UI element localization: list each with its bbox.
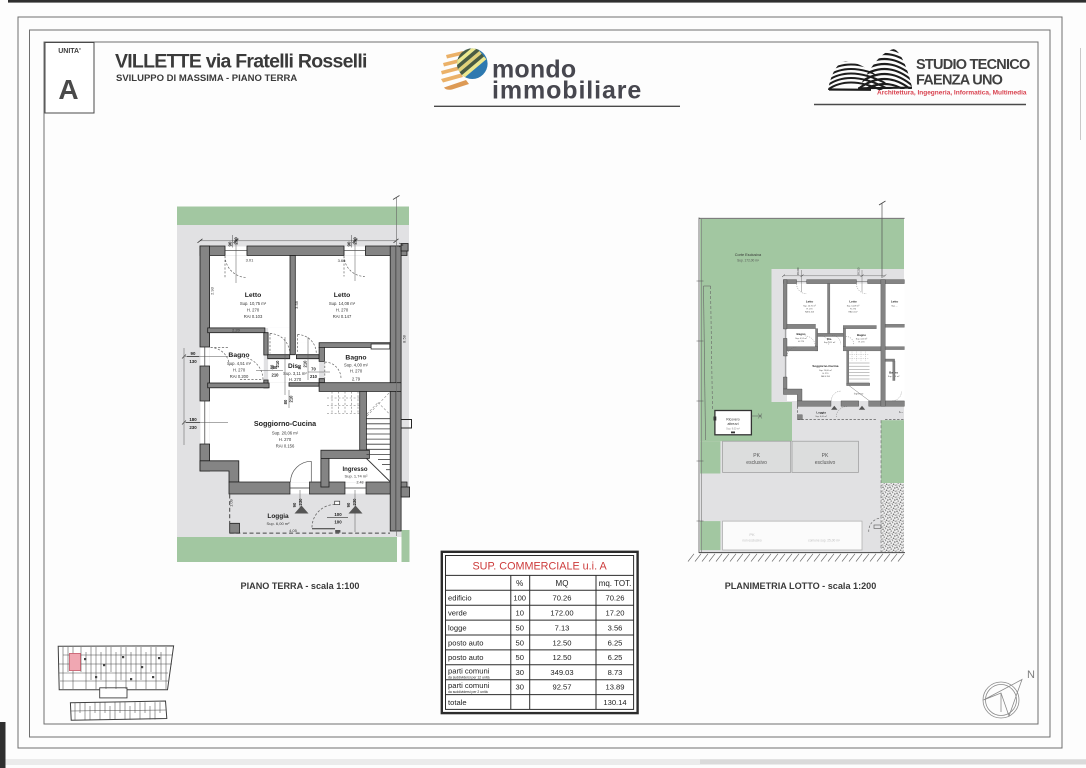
svg-text:N: N: [1027, 669, 1035, 681]
svg-text:immobiliare: immobiliare: [492, 77, 642, 105]
svg-text:Sup. ...: Sup. ...: [891, 306, 898, 308]
svg-text:30: 30: [515, 683, 523, 692]
svg-text:Soggiorno-Cucina: Soggiorno-Cucina: [812, 364, 838, 368]
svg-text:90: 90: [228, 241, 233, 246]
svg-text:comune sup. 25,00 m²: comune sup. 25,00 m²: [808, 539, 840, 543]
svg-text:Sup. 1,74 m²: Sup. 1,74 m²: [345, 474, 369, 479]
svg-text:non esclusivo: non esclusivo: [742, 539, 762, 543]
svg-text:230: 230: [353, 237, 358, 245]
svg-text:da suddividersi per 12 unità: da suddividersi per 12 unità: [448, 675, 490, 679]
svg-text:Sup. 20,06 m²: Sup. 20,06 m²: [819, 369, 832, 372]
svg-text:PK: PK: [822, 453, 829, 459]
svg-text:Letto: Letto: [849, 300, 856, 304]
svg-text:RAI 0.156: RAI 0.156: [276, 444, 295, 449]
svg-text:100: 100: [513, 594, 526, 603]
svg-text:Sup. 14,08 m²: Sup. 14,08 m²: [847, 305, 860, 308]
svg-text:STUDIO TECNICO: STUDIO TECNICO: [916, 57, 1030, 73]
svg-text:Ingresso: Ingresso: [342, 467, 367, 473]
svg-text:VILLETTE via Fratelli Rosselli: VILLETTE via Fratelli Rosselli: [115, 51, 367, 73]
svg-text:230: 230: [189, 425, 197, 430]
svg-text:Loggia: Loggia: [816, 411, 826, 415]
svg-text:Soggiorno-Cucina: Soggiorno-Cucina: [254, 419, 317, 428]
svg-text:130: 130: [189, 359, 197, 364]
svg-text:H. 270: H. 270: [807, 309, 814, 311]
svg-text:A: A: [58, 74, 78, 105]
svg-text:90: 90: [292, 502, 297, 507]
svg-text:verde: verde: [448, 609, 467, 618]
svg-text:H. 270: H. 270: [289, 377, 302, 382]
svg-text:180: 180: [189, 417, 197, 422]
svg-text:Letto: Letto: [806, 300, 813, 304]
svg-text:90: 90: [347, 241, 352, 246]
svg-text:MQ: MQ: [556, 579, 569, 588]
svg-text:RAI 0.103: RAI 0.103: [805, 311, 815, 314]
svg-text:Dis.: Dis.: [827, 337, 832, 341]
svg-text:L...: L...: [900, 410, 904, 414]
svg-text:Bagno: Bagno: [797, 332, 806, 336]
svg-text:3.58: 3.58: [294, 300, 299, 309]
svg-text:mq. TOT.: mq. TOT.: [599, 579, 632, 588]
svg-text:50: 50: [515, 653, 523, 662]
svg-text:90: 90: [346, 502, 351, 507]
svg-text:Sup. 172,00 m²: Sup. 172,00 m²: [737, 259, 759, 263]
svg-text:H. 270: H. 270: [247, 308, 260, 313]
svg-text:H. 270: H. 270: [233, 368, 246, 373]
svg-text:12.50: 12.50: [552, 638, 571, 647]
svg-text:PIANO TERRA - scala 1:100: PIANO TERRA - scala 1:100: [241, 581, 360, 591]
svg-text:Sup. 10,75 m²: Sup. 10,75 m²: [240, 301, 267, 306]
svg-text:3.01: 3.01: [246, 258, 255, 263]
svg-text:Sup. 4,00 m²: Sup. 4,00 m²: [344, 363, 369, 368]
svg-text:Letto: Letto: [245, 292, 262, 299]
svg-text:SVILUPPO DI MASSIMA - PIANO TE: SVILUPPO DI MASSIMA - PIANO TERRA: [116, 73, 297, 84]
svg-text:30: 30: [515, 668, 523, 677]
svg-text:Ingresso: Ingresso: [854, 393, 864, 396]
svg-text:Sup. 4,00 m²: Sup. 4,00 m²: [856, 338, 868, 341]
svg-text:210: 210: [303, 360, 308, 368]
svg-text:90 230: 90 230: [858, 267, 861, 275]
svg-text:Ricovero: Ricovero: [726, 418, 739, 422]
svg-text:50: 50: [515, 623, 523, 632]
svg-text:2.79: 2.79: [352, 377, 361, 382]
svg-text:210: 210: [310, 374, 318, 379]
svg-text:13.89: 13.89: [605, 683, 624, 692]
svg-text:3.60: 3.60: [338, 258, 347, 263]
svg-text:230: 230: [352, 498, 357, 506]
svg-text:posto auto: posto auto: [448, 638, 483, 647]
svg-text:Sup. 14,08 m²: Sup. 14,08 m²: [329, 301, 356, 306]
svg-text:posto auto: posto auto: [448, 653, 483, 662]
svg-text:RAI 0.147: RAI 0.147: [333, 314, 352, 319]
svg-text:esclusivo: esclusivo: [815, 460, 836, 466]
svg-text:PK: PK: [753, 453, 760, 459]
svg-text:da suddividersi per 2 unità: da suddividersi per 2 unità: [448, 690, 488, 694]
svg-text:Corte Esclusiva: Corte Esclusiva: [735, 253, 762, 257]
svg-text:Sup. 3,11 m²: Sup. 3,11 m²: [824, 341, 836, 344]
svg-text:totale: totale: [448, 698, 467, 707]
svg-text:6.25: 6.25: [608, 638, 623, 647]
svg-text:7.13: 7.13: [555, 623, 570, 632]
svg-text:RAI 0.103: RAI 0.103: [244, 314, 263, 319]
svg-text:Letto: Letto: [334, 292, 351, 299]
svg-text:100: 100: [334, 512, 342, 517]
svg-text:80: 80: [283, 399, 288, 404]
svg-text:Bagno: Bagno: [345, 355, 366, 362]
svg-text:92.57: 92.57: [552, 683, 571, 692]
svg-text:80: 80: [273, 365, 278, 370]
svg-text:H. 270: H. 270: [798, 341, 805, 343]
svg-text:SUP. COMMERCIALE u.i. A: SUP. COMMERCIALE u.i. A: [472, 561, 607, 573]
svg-text:Loggia: Loggia: [267, 513, 289, 520]
svg-text:Letto: Letto: [891, 300, 898, 304]
svg-text:Sup. 4,51 m²: Sup. 4,51 m²: [227, 361, 252, 366]
svg-text:H. 270: H. 270: [859, 342, 866, 344]
svg-text:6.25: 6.25: [608, 653, 623, 662]
svg-text:H. 270: H. 270: [336, 308, 349, 313]
svg-text:PK: PK: [749, 532, 755, 537]
svg-text:logge: logge: [448, 623, 467, 632]
svg-text:4.05: 4.05: [289, 528, 298, 533]
svg-text:230: 230: [234, 237, 239, 245]
svg-text:UNITA': UNITA': [58, 48, 81, 55]
svg-text:Bagno: Bagno: [857, 333, 866, 337]
svg-text:80: 80: [297, 364, 302, 369]
svg-text:100: 100: [334, 520, 342, 525]
svg-text:Sup. 3,11 m²: Sup. 3,11 m²: [283, 371, 307, 376]
svg-text:70.26: 70.26: [605, 594, 624, 603]
svg-text:50: 50: [515, 638, 523, 647]
svg-text:8.73: 8.73: [608, 668, 623, 677]
svg-text:%: %: [516, 579, 523, 588]
svg-text:FAENZA UNO: FAENZA UNO: [916, 73, 1003, 89]
svg-text:3.56: 3.56: [608, 623, 623, 632]
svg-text:edificio: edificio: [448, 594, 472, 603]
svg-text:RAI 0.156: RAI 0.156: [821, 375, 831, 378]
svg-text:230: 230: [298, 498, 303, 506]
svg-text:10: 10: [515, 609, 523, 618]
svg-text:Bagno: Bagno: [228, 352, 249, 359]
svg-text:2.48: 2.48: [357, 481, 364, 485]
svg-text:210: 210: [272, 373, 280, 378]
svg-text:8.58: 8.58: [402, 334, 407, 343]
svg-text:172.00: 172.00: [550, 609, 573, 618]
svg-text:Sup. 6,00 m²: Sup. 6,00 m²: [267, 521, 291, 526]
svg-text:H. 270: H. 270: [279, 437, 292, 442]
svg-text:2.93: 2.93: [210, 286, 215, 295]
svg-text:H. 270: H. 270: [822, 373, 829, 375]
svg-text:PLANIMETRIA LOTTO - scala 1:20: PLANIMETRIA LOTTO - scala 1:200: [725, 581, 877, 591]
svg-text:parti comuni: parti comuni: [448, 666, 490, 675]
svg-text:Sup. 6,00 m²: Sup. 6,00 m²: [815, 415, 827, 418]
svg-text:Architettura, Ingegneria, Info: Architettura, Ingegneria, Informatica, M…: [877, 90, 1027, 97]
svg-text:12.50: 12.50: [552, 653, 571, 662]
svg-text:Sup. 9,00 m²: Sup. 9,00 m²: [726, 428, 740, 431]
svg-text:Sup. 4,51 m²: Sup. 4,51 m²: [795, 337, 807, 340]
svg-text:RAI 0.200: RAI 0.200: [230, 374, 249, 379]
svg-text:90 230: 90 230: [797, 267, 800, 275]
svg-text:H. 270: H. 270: [850, 309, 857, 311]
svg-text:H. 270: H. 270: [350, 369, 363, 374]
svg-text:esclusivo: esclusivo: [746, 460, 767, 466]
svg-text:17.20: 17.20: [605, 609, 624, 618]
svg-text:70: 70: [311, 367, 316, 372]
svg-text:Sup. 10,75 m²: Sup. 10,75 m²: [803, 305, 816, 308]
svg-text:attrezzi: attrezzi: [728, 422, 739, 426]
svg-text:90: 90: [191, 351, 196, 356]
svg-text:70.26: 70.26: [552, 594, 571, 603]
svg-text:RAI 0.147: RAI 0.147: [849, 311, 859, 314]
svg-text:parti comuni: parti comuni: [448, 681, 490, 690]
svg-text:2.20: 2.20: [232, 328, 241, 333]
svg-text:130.14: 130.14: [603, 698, 626, 707]
svg-text:349.03: 349.03: [550, 668, 573, 677]
svg-text:1.09: 1.09: [229, 498, 234, 507]
svg-text:Sup. 20,06 m²: Sup. 20,06 m²: [272, 431, 299, 436]
